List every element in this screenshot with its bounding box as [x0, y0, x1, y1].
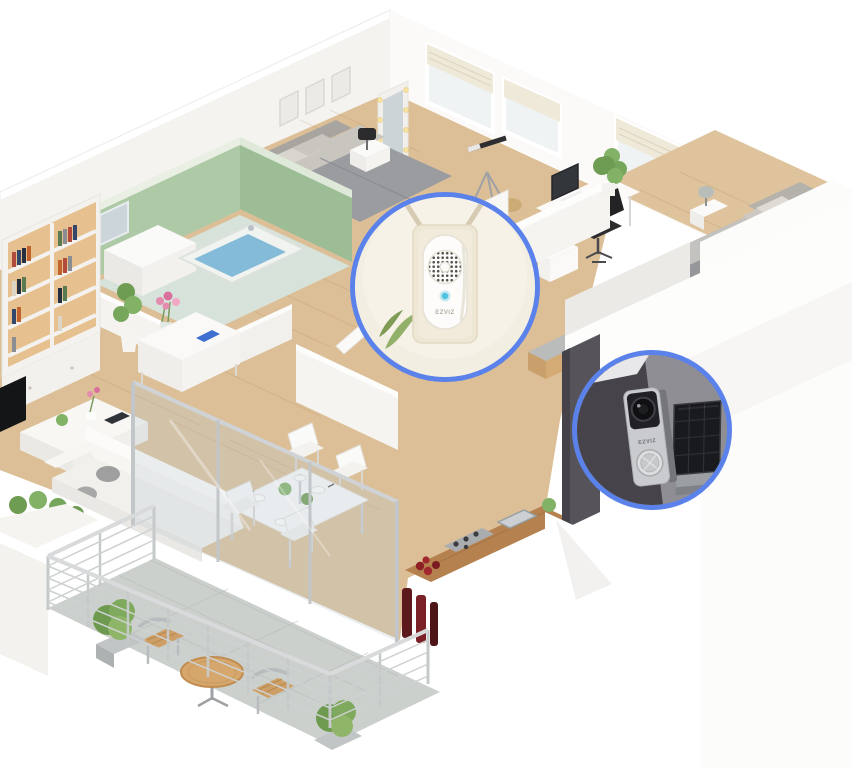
chime-callout: EZVIZ: [350, 192, 540, 382]
round-pillow: [96, 466, 120, 482]
chime-device: EZVIZ: [423, 235, 467, 329]
table-lamp2: [698, 186, 714, 198]
bistro-table: [181, 657, 243, 706]
chime-brand-logo: EZVIZ: [435, 310, 455, 316]
doorbell-callout: EZVIZ: [572, 350, 732, 510]
table-lamp: [358, 128, 376, 140]
product-scene: EZVIZ EZ: [0, 0, 852, 768]
status-led: [442, 293, 448, 299]
faucet: [248, 225, 254, 231]
counter-plant: [542, 498, 556, 512]
apartment-floorplan: [0, 0, 852, 768]
doorbell-illustration: EZVIZ: [577, 355, 727, 505]
table-plant: [56, 414, 68, 426]
chime-illustration: EZVIZ: [355, 197, 535, 377]
